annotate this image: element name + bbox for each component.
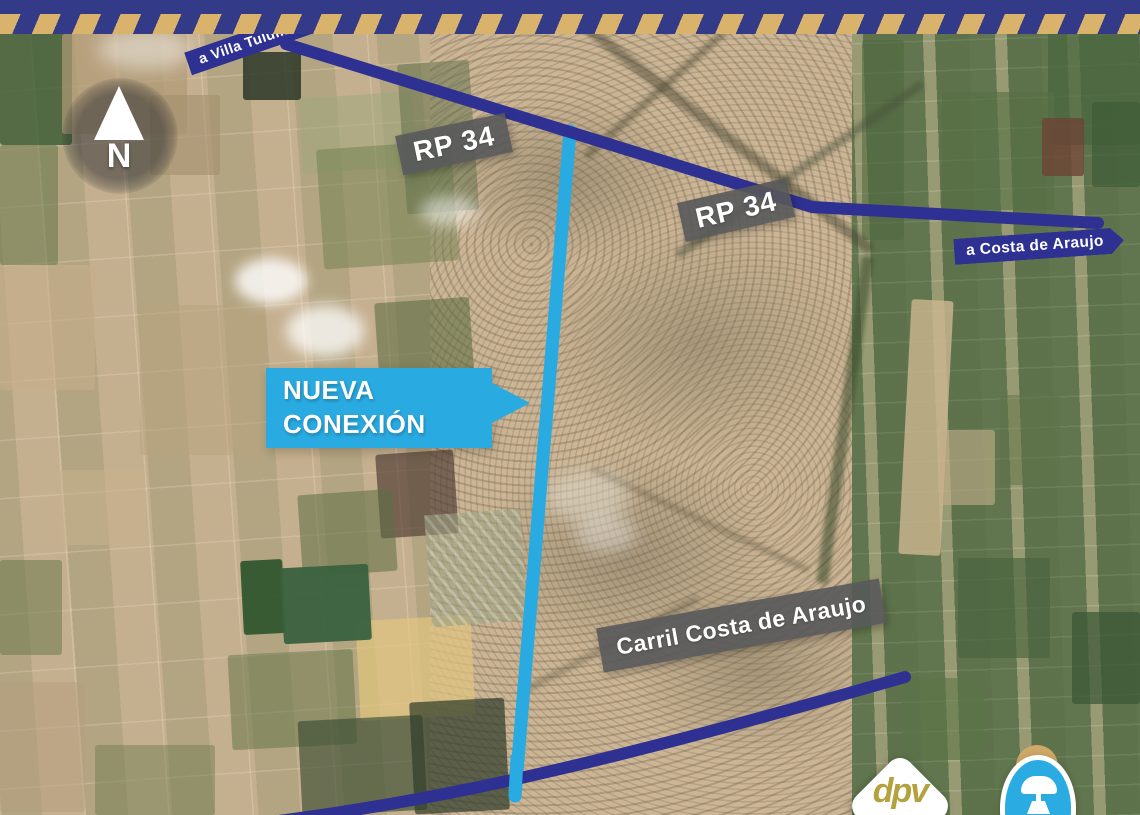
callout-line2: CONEXIÓN	[283, 408, 492, 442]
satellite-patch	[0, 560, 62, 655]
satellite-patch	[286, 305, 364, 357]
satellite-patch	[140, 305, 265, 455]
satellite-patch	[1072, 612, 1140, 704]
satellite-row-crop-field	[424, 509, 528, 627]
satellite-patch	[1042, 118, 1084, 176]
satellite-patch	[235, 258, 307, 304]
satellite-patch	[545, 470, 630, 522]
satellite-patch	[0, 145, 58, 265]
satellite-patch	[1092, 102, 1140, 187]
dpv-logo-text: dpv	[860, 772, 940, 811]
tree-umbrella-icon	[1021, 776, 1057, 794]
satellite-patch	[98, 28, 193, 70]
new-connection-callout: NUEVA CONEXIÓN	[266, 368, 492, 448]
compass-north-letter: N	[96, 137, 142, 176]
satellite-patch	[958, 558, 1050, 658]
satellite-patch	[902, 678, 984, 760]
satellite-patch	[862, 40, 904, 240]
top-border-hazard-stripes	[0, 14, 1140, 34]
satellite-patch	[420, 196, 478, 226]
satellite-patch	[1000, 395, 1060, 485]
satellite-patch	[243, 52, 301, 100]
callout-line1: NUEVA	[283, 374, 492, 408]
satellite-patch	[575, 515, 637, 553]
satellite-patch	[0, 682, 85, 812]
satellite-patch	[280, 564, 372, 645]
top-border-solid	[0, 0, 1140, 14]
satellite-patch	[95, 745, 215, 815]
satellite-patch	[940, 430, 995, 505]
satellite-patch	[60, 470, 145, 545]
satellite-patch	[0, 265, 95, 390]
map-poster: N a Villa Tulumaya RP 34 RP 34 a Costa d…	[0, 0, 1140, 815]
satellite-patch	[298, 715, 428, 815]
satellite-patch	[942, 92, 1054, 210]
satellite-patch	[240, 559, 286, 635]
satellite-patch	[409, 698, 510, 815]
